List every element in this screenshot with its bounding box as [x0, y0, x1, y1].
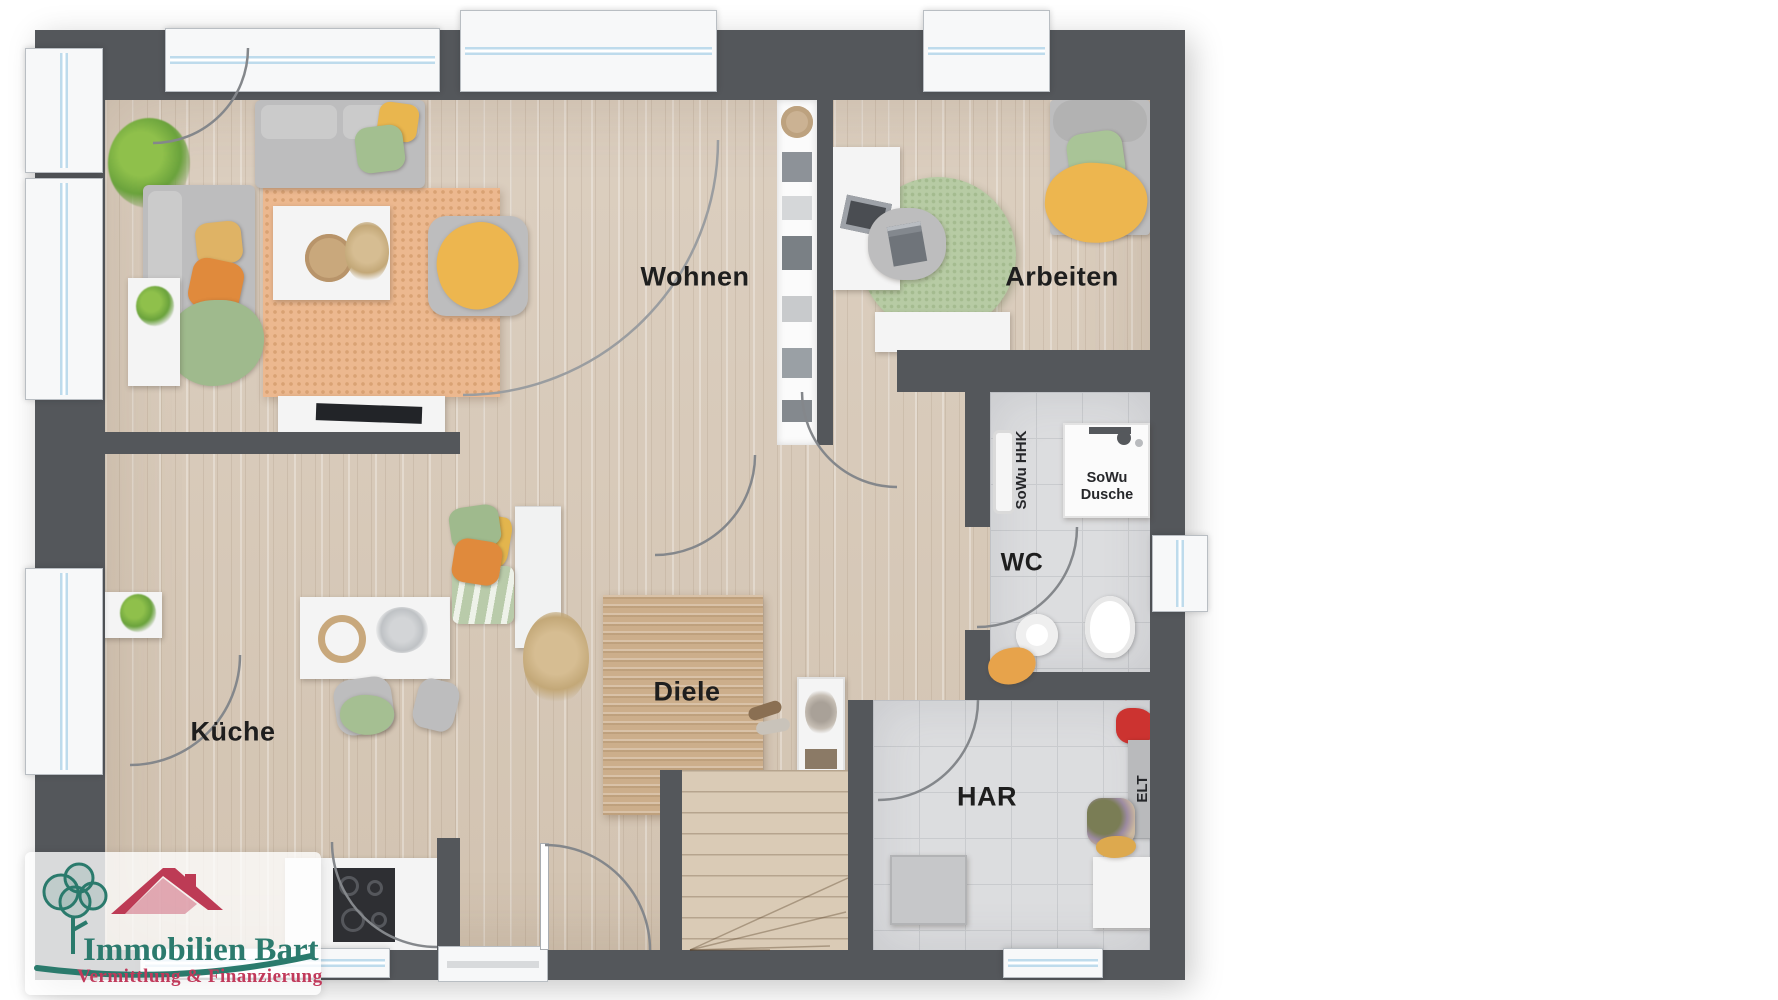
window [1003, 948, 1103, 978]
pillow-green [353, 123, 406, 175]
kitchen-table [300, 597, 450, 679]
room-label-hallway: Diele [653, 677, 720, 708]
window [460, 10, 717, 92]
floor-plan-canvas: Wohnen Arbeiten Küche Diele WC HAR SoWu … [0, 0, 1778, 1000]
tv-icon [316, 403, 423, 424]
tree-foliage [60, 887, 90, 917]
entrance-door-leaf [540, 843, 549, 950]
shower-head-icon [1117, 431, 1131, 445]
shoe [755, 717, 791, 736]
picture-books [805, 749, 837, 769]
table-decor [376, 607, 428, 653]
burner [367, 880, 383, 896]
office-chair [868, 208, 946, 280]
chair-books [887, 221, 927, 266]
burner [341, 908, 365, 932]
basket-icon [781, 106, 813, 138]
shelf-plant [136, 286, 174, 326]
dried-plant [523, 612, 589, 704]
books-row [782, 152, 812, 182]
toilet-icon [1085, 596, 1135, 658]
wall-right [1150, 30, 1185, 980]
label-radiator: SoWu HHK [1013, 420, 1033, 520]
wall-wc-west-upper [965, 392, 990, 527]
shoes-icon [748, 700, 794, 740]
burner [339, 876, 359, 896]
window [165, 28, 440, 92]
label-shower-line2: Dusche [1081, 487, 1133, 503]
chimney-icon [185, 874, 196, 892]
wall-living-kitchen [105, 432, 460, 454]
table-plant [345, 222, 389, 282]
books-row [782, 296, 812, 322]
entrance-door [438, 946, 548, 982]
books-row [782, 236, 812, 270]
sofa-back-cushion [261, 105, 337, 139]
wall-kitchen-entry-stub [437, 838, 460, 950]
bookshelf [777, 100, 817, 445]
room-label-utility: HAR [957, 782, 1017, 813]
wall-shelf-divider [817, 100, 833, 445]
books-row [782, 400, 812, 422]
books-row [782, 196, 812, 220]
cooktop-icon [333, 868, 395, 942]
books-row [782, 348, 812, 378]
window [25, 48, 103, 173]
logo-company-name: Immobilien Bart [83, 932, 319, 969]
room-label-kitchen: Küche [190, 717, 275, 748]
label-electrical: ELT [1134, 759, 1152, 819]
door-threshold [447, 961, 539, 968]
leaning-picture [797, 677, 845, 781]
wall-utility-west [848, 700, 873, 950]
window [25, 568, 103, 775]
picture-motif [805, 689, 837, 735]
window [25, 178, 103, 400]
office-sideboard [875, 312, 1010, 352]
washing-machine [890, 855, 967, 925]
logo-tagline: Vermittlung & Finanzierung [77, 966, 323, 988]
shower-drain [1135, 439, 1143, 447]
wall-office-south [897, 350, 1150, 392]
room-label-wc: WC [1001, 549, 1044, 578]
room-label-living: Wohnen [641, 262, 750, 293]
radiator-icon [993, 430, 1015, 514]
staircase [682, 770, 848, 950]
burner [371, 912, 387, 928]
label-shower-line1: SoWu [1087, 470, 1128, 486]
window [923, 10, 1050, 92]
window [1152, 535, 1208, 612]
cabinet-plant [120, 594, 156, 632]
wall-stair-west [660, 770, 682, 950]
tree-branch [73, 922, 87, 930]
company-logo: Immobilien Bart Vermittlung & Finanzieru… [25, 852, 321, 995]
appliance [1093, 857, 1150, 928]
wall-shelf-small [128, 278, 180, 386]
label-shower: SoWu Dusche [1081, 470, 1133, 504]
room-label-office: Arbeiten [1005, 262, 1119, 293]
wreath-icon [318, 615, 366, 663]
wall-wc-west-lower [965, 630, 990, 672]
bench-pillow-orange [450, 537, 504, 588]
coffee-table [273, 206, 390, 300]
